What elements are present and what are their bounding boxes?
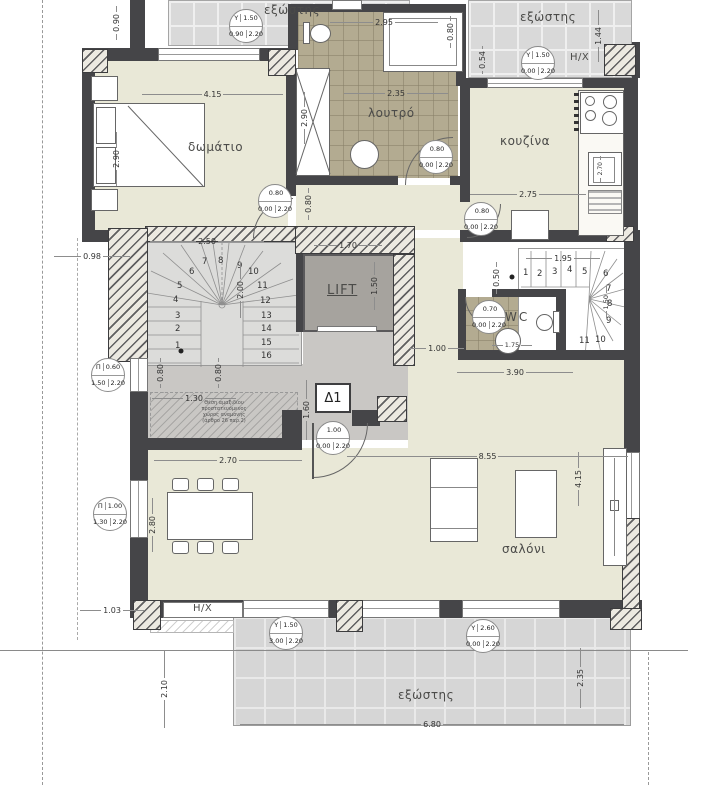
dim-vest-160: 1.60 xyxy=(302,378,311,442)
step-number: 11 xyxy=(257,281,268,291)
sofa-1 xyxy=(430,458,478,542)
kitchen-label: κουζίνα xyxy=(500,134,550,148)
dim-bath-width: 2.35 xyxy=(342,89,450,98)
burner-4 xyxy=(602,111,617,126)
dim-tr-144: 1.44 xyxy=(594,8,603,64)
step-number: 12 xyxy=(260,296,271,306)
marker-width: 0.70 xyxy=(483,305,497,313)
bath-niche xyxy=(332,0,362,10)
dim-bed-length: 2.90 xyxy=(112,130,121,188)
bath-toilet-tank xyxy=(303,22,310,44)
dim-din-270: 2.70 xyxy=(152,456,304,465)
bedroom-label: δωμάτιο xyxy=(188,140,243,154)
step-number: 6 xyxy=(603,269,608,279)
marker-height: 2.20 xyxy=(541,67,555,75)
dim-tub-width: 0.80 xyxy=(446,14,455,50)
balcony-top-left-label: εξώστης xyxy=(264,3,320,17)
bathroom-label: λουτρό xyxy=(368,106,415,120)
bath-sink xyxy=(350,140,379,169)
marker-sill: 0.00 xyxy=(472,321,489,329)
marker-window-balcony-tr: Y1.50 0.002.20 xyxy=(521,46,555,80)
tv-unit-line xyxy=(614,458,615,556)
dim-bath-top: 2.95 xyxy=(328,18,440,27)
marker-height: 2.20 xyxy=(486,640,500,648)
pier-bottom-1 xyxy=(133,600,161,630)
marker-code: Π xyxy=(98,502,106,510)
marker-width: 1.50 xyxy=(243,14,257,22)
dim-terr-235: 2.35 xyxy=(576,646,585,710)
step-number: 16 xyxy=(261,351,272,361)
marker-width: 1.00 xyxy=(327,426,341,434)
step-number: 3 xyxy=(175,311,180,321)
nightstand-2 xyxy=(91,189,118,211)
chair xyxy=(172,478,189,491)
pier-bedroom-tr xyxy=(268,49,296,76)
marker-sill: 0.00 xyxy=(419,161,436,169)
hx-top-label: H/X xyxy=(570,52,589,63)
setback-line-left xyxy=(77,238,78,640)
staircase-left-drawing: 1 2 3 4 5 6 7 8 9 10 11 12 13 14 15 16 xyxy=(143,243,303,367)
marker-code: Y xyxy=(234,14,241,22)
wall-kitchen-right xyxy=(624,78,638,242)
dim-vest-080a: 0.80 xyxy=(156,356,165,390)
dim-rstair-width: 1.95 xyxy=(524,254,602,263)
dim-vest-080b: 0.80 xyxy=(214,356,223,390)
marker-door-bedroom: 0.80 0.002.20 xyxy=(258,184,292,218)
wc-label: WC xyxy=(505,310,529,324)
lift-label: LIFT xyxy=(327,283,357,298)
wall-balcony-tl-stub xyxy=(130,0,145,48)
marker-height: 2.20 xyxy=(336,442,350,450)
marker-width: 1.00 xyxy=(108,502,122,510)
marker-sill: 1.30 xyxy=(93,518,110,526)
step-number: 5 xyxy=(582,267,587,277)
marker-width: 0.80 xyxy=(269,189,283,197)
entry-door-leaf xyxy=(312,423,314,479)
pier-bottom-2 xyxy=(336,600,363,632)
step-number: 4 xyxy=(567,265,572,275)
dim-corridor-100: 1.00 xyxy=(408,344,466,353)
marker-height: 2.20 xyxy=(111,379,125,387)
step-number: 15 xyxy=(261,338,272,348)
marker-width: 1.50 xyxy=(283,621,297,629)
marker-sill: 0.00 xyxy=(521,67,538,75)
dim-wheel-130: 1.30 xyxy=(150,394,238,403)
step-number: 10 xyxy=(595,335,606,345)
dim-wc-175: 1.75 xyxy=(490,341,534,349)
step-number: 13 xyxy=(261,311,272,321)
dim-bath-height: 2.90 xyxy=(300,90,309,146)
marker-height: 2.20 xyxy=(278,205,292,213)
window-left-2 xyxy=(130,480,148,538)
dim-bedroom-width: 4.15 xyxy=(140,90,285,99)
marker-sill: 0.90 xyxy=(229,30,246,38)
terrace-ledge xyxy=(150,620,234,633)
living-label: σαλόνι xyxy=(502,542,546,556)
marker-sill: 0.00 xyxy=(466,640,483,648)
dim-hall-390: 3.90 xyxy=(455,368,575,377)
step-number: 5 xyxy=(177,281,182,291)
marker-height: 2.20 xyxy=(289,637,303,645)
step-number: 7 xyxy=(202,257,207,267)
wall-bath-bottom-a xyxy=(294,176,398,185)
dim-bl-210: 2.10 xyxy=(160,648,169,730)
dining-table xyxy=(167,492,253,540)
hall xyxy=(296,185,466,230)
apartment-tag-text: Δ1 xyxy=(324,391,341,406)
marker-width: 0.60 xyxy=(106,363,120,371)
marker-height: 2.20 xyxy=(484,223,498,231)
marker-door-kitchen: 0.80 0.002.20 xyxy=(464,202,498,236)
pier-bedroom-tl xyxy=(82,49,108,73)
marker-height: 2.20 xyxy=(113,518,127,526)
marker-sill: 1.50 xyxy=(91,379,108,387)
dim-lift-height: 1.50 xyxy=(370,260,379,312)
chair xyxy=(222,478,239,491)
staircase-right-drawing: 1 2 3 4 5 6 7 8 9 10 11 xyxy=(519,249,627,361)
wall-kitchen-left xyxy=(460,88,470,202)
dim-left-098: 0.98 xyxy=(52,252,132,261)
window-bedroom xyxy=(158,48,260,61)
dim-lift-width: 1.70 xyxy=(312,241,384,250)
dim-stair-height: 2.00 xyxy=(236,260,245,320)
terrace-label: εξώστης xyxy=(398,688,454,702)
marker-sill: 0.00 xyxy=(316,442,333,450)
wall-left-living xyxy=(130,440,148,482)
step-number: 3 xyxy=(552,267,557,277)
step-number: 14 xyxy=(261,324,272,334)
dim-liv-415: 4.15 xyxy=(574,450,583,508)
marker-width: 1.50 xyxy=(535,51,549,59)
marker-window-terrace: Y2.60 0.002.20 xyxy=(466,619,500,653)
dim-hall-080: 0.80 xyxy=(304,186,313,222)
wc-door-gap xyxy=(466,289,492,297)
dim-rstair-050: 0.50 xyxy=(492,260,501,296)
vestibule-upper xyxy=(303,332,393,366)
wc-toilet-tank xyxy=(553,311,560,333)
hatch-left-column xyxy=(108,228,148,362)
dim-tr-054: 0.54 xyxy=(478,44,487,76)
dim-bl-103: 1.03 xyxy=(78,606,146,615)
marker-height: 2.20 xyxy=(249,30,263,38)
dim-rstair-150: 1.50 xyxy=(602,284,610,320)
step-number: 10 xyxy=(248,267,259,277)
chair xyxy=(222,541,239,554)
marker-door-entry: 1.00 0.002.20 xyxy=(316,421,350,455)
marker-window-balcony-tl: Y1.50 0.902.20 xyxy=(229,9,263,43)
wall-wc-bottom xyxy=(458,350,640,360)
stove-knobs xyxy=(574,93,579,133)
pier-bottom-3 xyxy=(610,608,642,630)
marker-sill: 3.00 xyxy=(269,637,286,645)
sofa-2 xyxy=(515,470,557,538)
step-number: 4 xyxy=(173,295,178,305)
marker-width: 2.60 xyxy=(480,624,494,632)
kitchen-sink xyxy=(588,152,622,186)
marker-height: 2.20 xyxy=(439,161,453,169)
step-number: 11 xyxy=(579,336,590,346)
dim-terr-680: 6.80 xyxy=(238,720,626,729)
wc-toilet-bowl xyxy=(536,314,553,331)
pier-entry xyxy=(377,396,407,422)
marker-code: Y xyxy=(274,621,281,629)
step-number: 2 xyxy=(537,269,542,279)
floor-plan: εξώστης 0.90 δωμάτιο 4.15 2.90 λουτρό 2.… xyxy=(0,0,720,785)
marker-code: Y xyxy=(526,51,533,59)
chair xyxy=(197,541,214,554)
wall-lift-left xyxy=(296,254,303,332)
marker-window-left-2: Π1.00 1.302.20 xyxy=(93,497,127,531)
dim-din-280: 2.80 xyxy=(148,496,157,554)
dim-kitchen-width: 2.75 xyxy=(468,190,588,199)
marker-window-left-1: Π0.60 1.502.20 xyxy=(91,358,125,392)
burner-1 xyxy=(585,96,595,106)
burner-3 xyxy=(585,110,596,121)
step-number: 1 xyxy=(523,268,528,278)
step-number: 1 xyxy=(175,341,180,351)
wheelchair-note: Θέση αμαξιδίου προστατευόμενος χώρος ανα… xyxy=(152,400,296,424)
marker-sill: 0.00 xyxy=(464,223,481,231)
apartment-tag: Δ1 xyxy=(315,383,351,413)
kitchen-island xyxy=(511,210,549,240)
lift-door xyxy=(317,326,377,332)
staircase-left: 1 2 3 4 5 6 7 8 9 10 11 12 13 14 15 16 xyxy=(142,242,302,366)
pier-top-right xyxy=(604,44,636,76)
window-bottom-3 xyxy=(462,600,560,618)
dim-sink-270: 2.70 xyxy=(597,154,604,184)
marker-code: Π xyxy=(96,363,104,371)
chair xyxy=(197,478,214,491)
marker-code: Y xyxy=(471,624,478,632)
balcony-top-right-label: εξώστης xyxy=(520,10,576,24)
marker-width: 0.80 xyxy=(475,207,489,215)
note-line-4: (άρθρο 26 παρ.2) xyxy=(152,418,296,424)
hx-bottom-label: H/X xyxy=(193,603,212,614)
dim-balcony-tl-depth: 0.90 xyxy=(112,4,121,42)
dim-liv-855: 8.55 xyxy=(345,452,630,461)
marker-height: 2.20 xyxy=(492,321,506,329)
boundary-line-right xyxy=(648,652,649,785)
burner-2 xyxy=(603,95,617,109)
marker-window-bottom-left: Y1.50 3.002.20 xyxy=(269,616,303,650)
chair xyxy=(172,541,189,554)
wall-vestibule-south xyxy=(130,438,302,450)
marker-sill: 0.00 xyxy=(258,205,275,213)
step-number: 8 xyxy=(218,256,223,266)
step-number: 6 xyxy=(189,267,194,277)
marker-door-wc: 0.70 0.002.20 xyxy=(472,300,506,334)
window-left-1 xyxy=(130,358,148,392)
boundary-line-left xyxy=(42,0,43,785)
dishwasher xyxy=(588,190,622,214)
marker-door-bath: 0.80 0.002.20 xyxy=(419,140,453,174)
nightstand-1 xyxy=(91,76,118,101)
marker-width: 0.80 xyxy=(430,145,444,153)
dim-stair-width: 2.50 xyxy=(148,237,266,246)
step-number: 2 xyxy=(175,324,180,334)
